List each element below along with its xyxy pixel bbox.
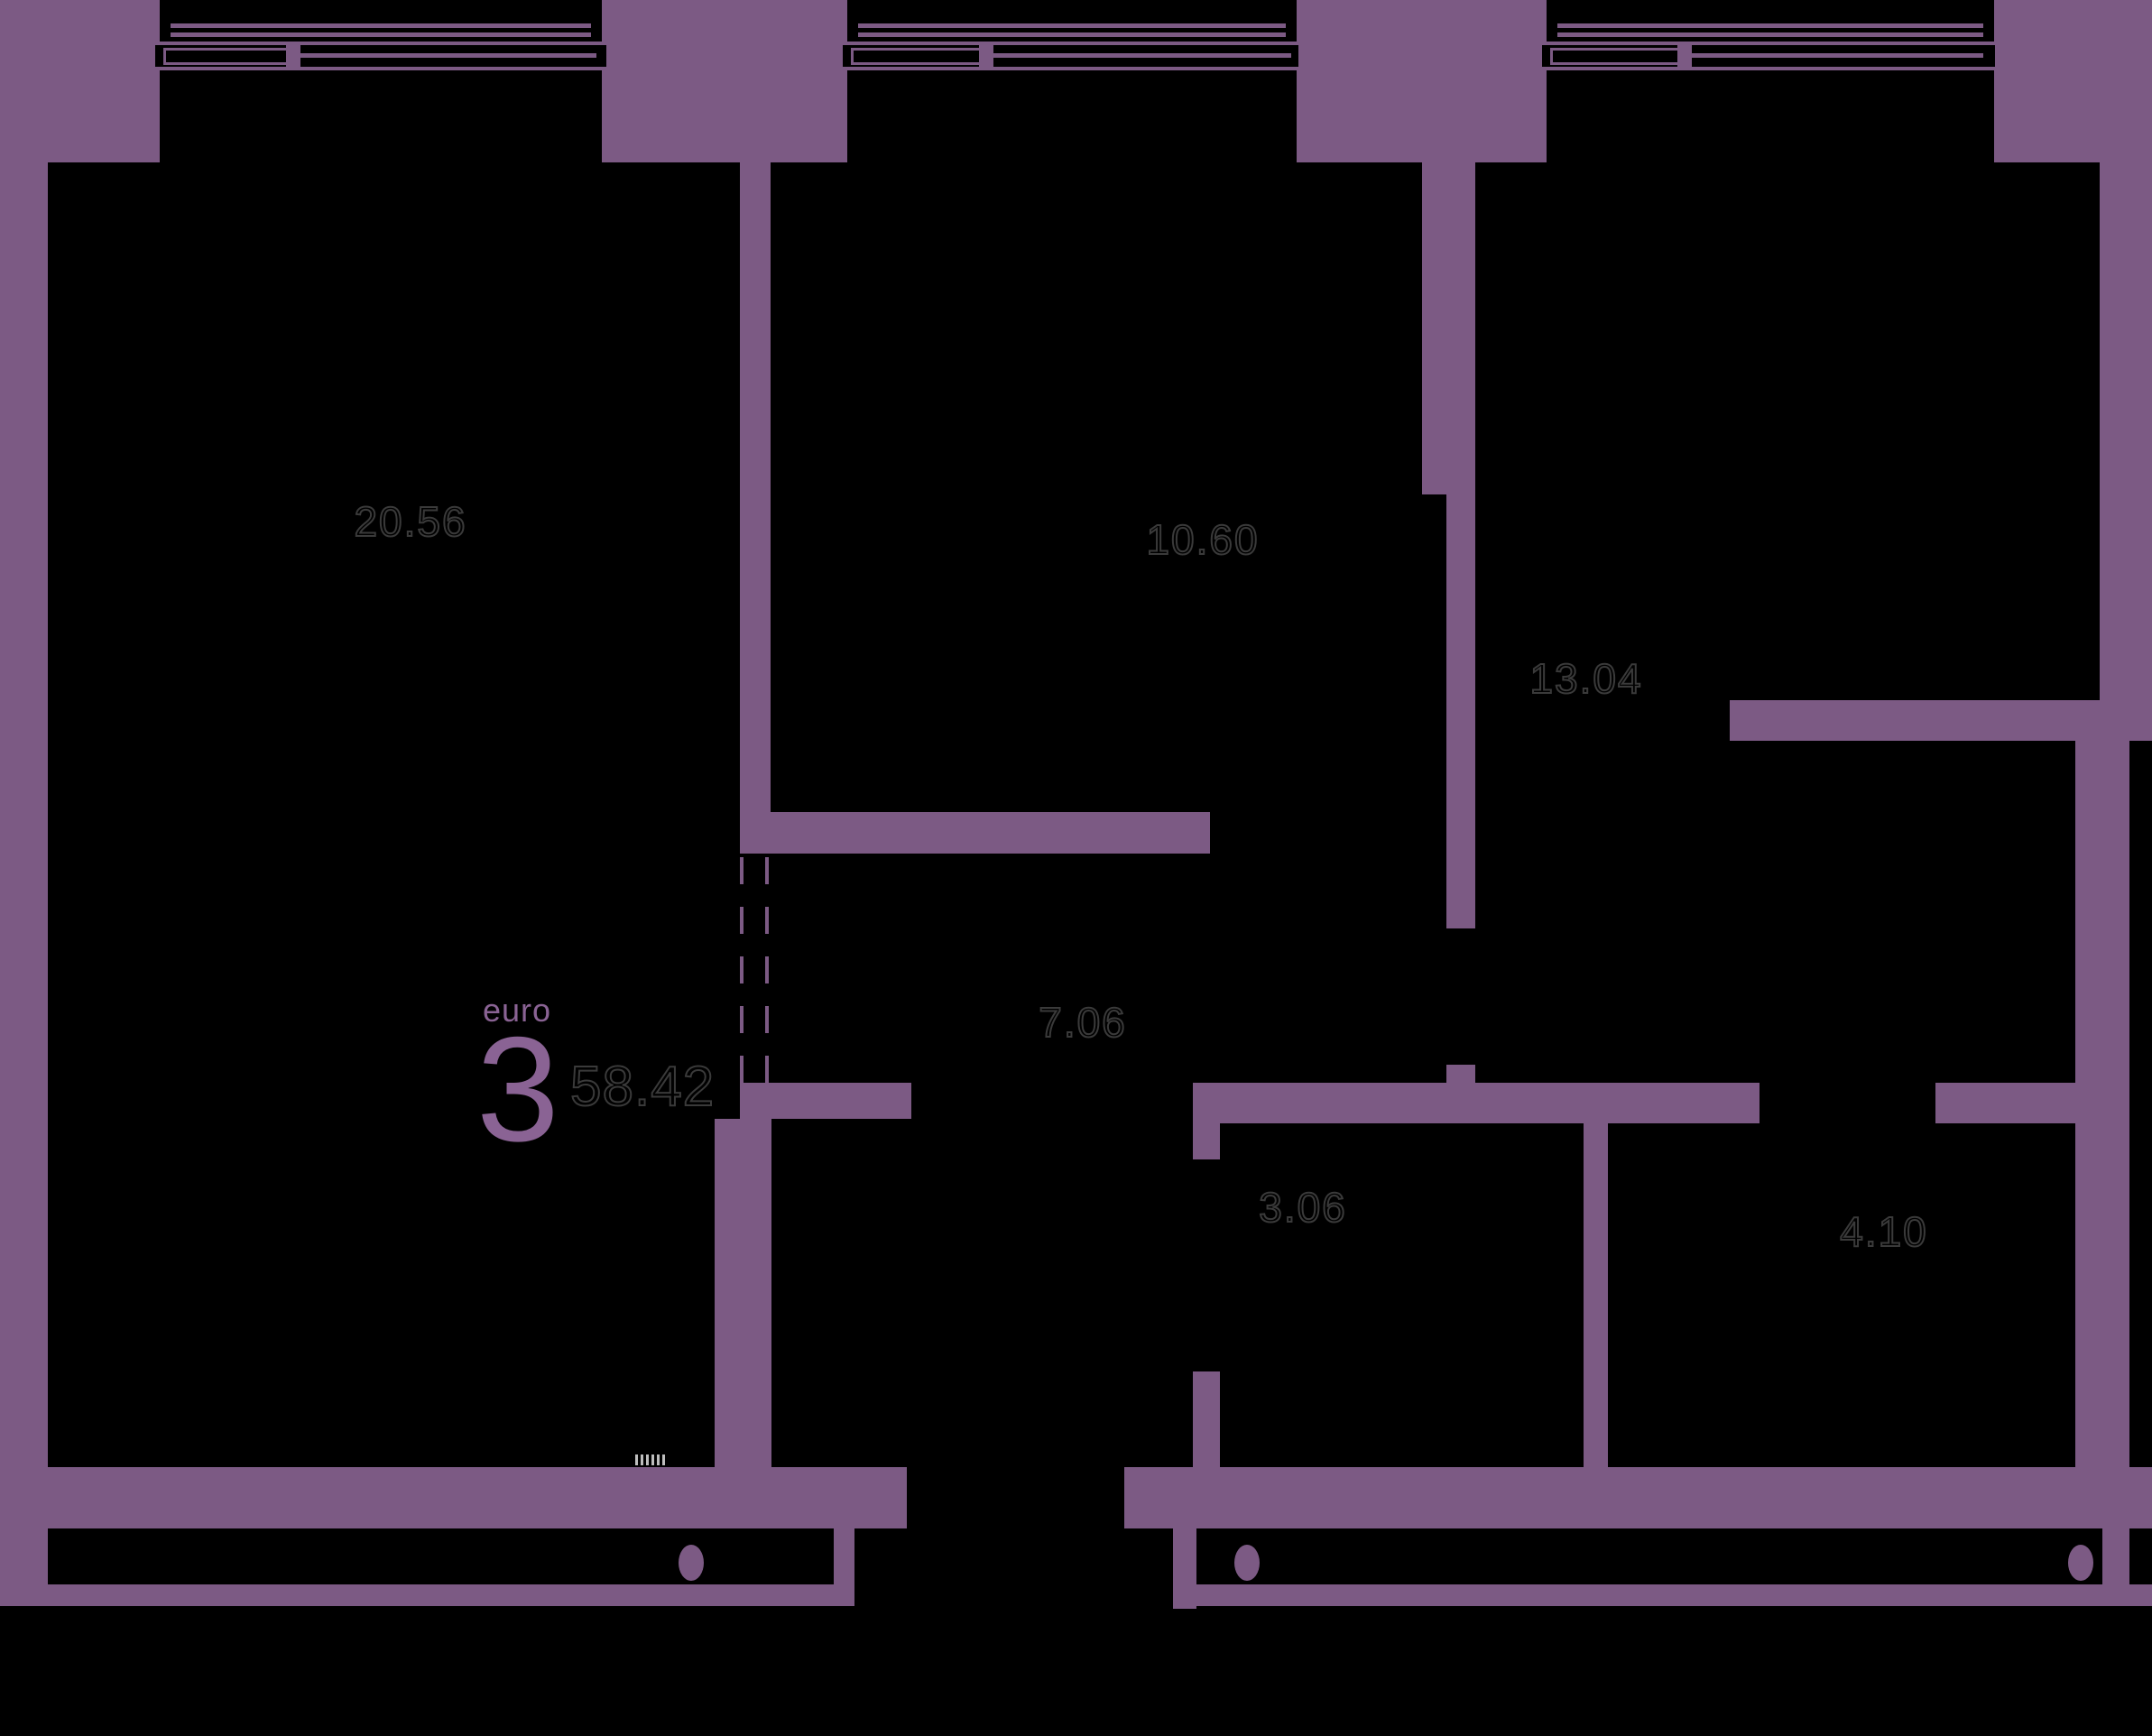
right-outer-wall-upper [2100, 162, 2152, 741]
balcony-right-end-wall [2102, 1528, 2129, 1584]
wall-living-lower [715, 1119, 771, 1467]
wall-storage-top [1935, 1083, 2102, 1123]
wall-bathroom-left-lower [1193, 1371, 1220, 1467]
window-2-outer-line-1 [858, 23, 1286, 28]
window-3-sill-line [1692, 53, 1983, 58]
room-area-bathroom: 3.06 [1168, 1182, 1438, 1233]
wall-kitchen-bedroom [1446, 162, 1475, 928]
unit-total-area: 58.42 [570, 1057, 787, 1117]
top-wall-pier-mid-right [1297, 0, 1547, 162]
balcony-right-outer-wall [1173, 1584, 2152, 1606]
living-room-door-dashed-line-1 [740, 857, 744, 1083]
window-3-sash-panel [1550, 48, 1683, 65]
wall-bathroom-storage [1584, 1083, 1608, 1467]
room-area-storage: 4.10 [1749, 1206, 2019, 1257]
unit-rooms-count: 3 [476, 1012, 585, 1166]
window-3-outer-line-1 [1557, 23, 1983, 28]
balcony-drain-circle-3 [2068, 1545, 2093, 1581]
wall-bathroom-left-upper [1193, 1123, 1220, 1159]
room-area-hallway: 7.06 [947, 997, 1218, 1048]
wall-bedroom-bottom [1730, 700, 2100, 741]
wall-hallway-top [753, 812, 1210, 854]
wall-bathroom-top [1193, 1083, 1759, 1123]
top-wall-pier-right [1994, 0, 2152, 162]
window-3-mullion [1677, 43, 1692, 69]
room-area-kitchen: 10.60 [1067, 514, 1338, 565]
window-1-outer-line-1 [171, 23, 591, 28]
top-wall-pier-mid-left [602, 0, 847, 162]
window-1-outer-line-2 [171, 32, 591, 37]
window-1-mullion [286, 43, 300, 69]
window-2-outer-line-2 [858, 32, 1286, 37]
balcony-left-outer-wall [0, 1584, 854, 1606]
room-area-bedroom: 13.04 [1451, 653, 1722, 704]
tiny-white-marking [635, 1454, 666, 1465]
bottom-wall-left-segment [0, 1467, 907, 1528]
top-wall-pier-left [0, 0, 160, 162]
balcony-drain-circle-1 [679, 1545, 704, 1581]
right-outer-wall-lower [2075, 741, 2129, 1528]
floor-plan: 20.56 10.60 13.04 7.06 3.06 4.10 euro 3 … [0, 0, 2152, 1736]
window-1-sill-line [300, 53, 596, 58]
window-2-sill-line [993, 53, 1291, 58]
bottom-wall-right-segment [1124, 1467, 2152, 1528]
living-room-door-dashed-line-2 [765, 857, 769, 1083]
window-2-sash-panel [851, 48, 984, 65]
room-area-living: 20.56 [275, 496, 546, 547]
wall-living-kitchen [740, 162, 771, 854]
window-2-mullion [979, 43, 993, 69]
left-outer-wall [0, 162, 48, 1606]
balcony-drain-circle-2 [1234, 1545, 1260, 1581]
window-3-outer-line-2 [1557, 32, 1983, 37]
window-1-sash-panel [163, 48, 291, 65]
